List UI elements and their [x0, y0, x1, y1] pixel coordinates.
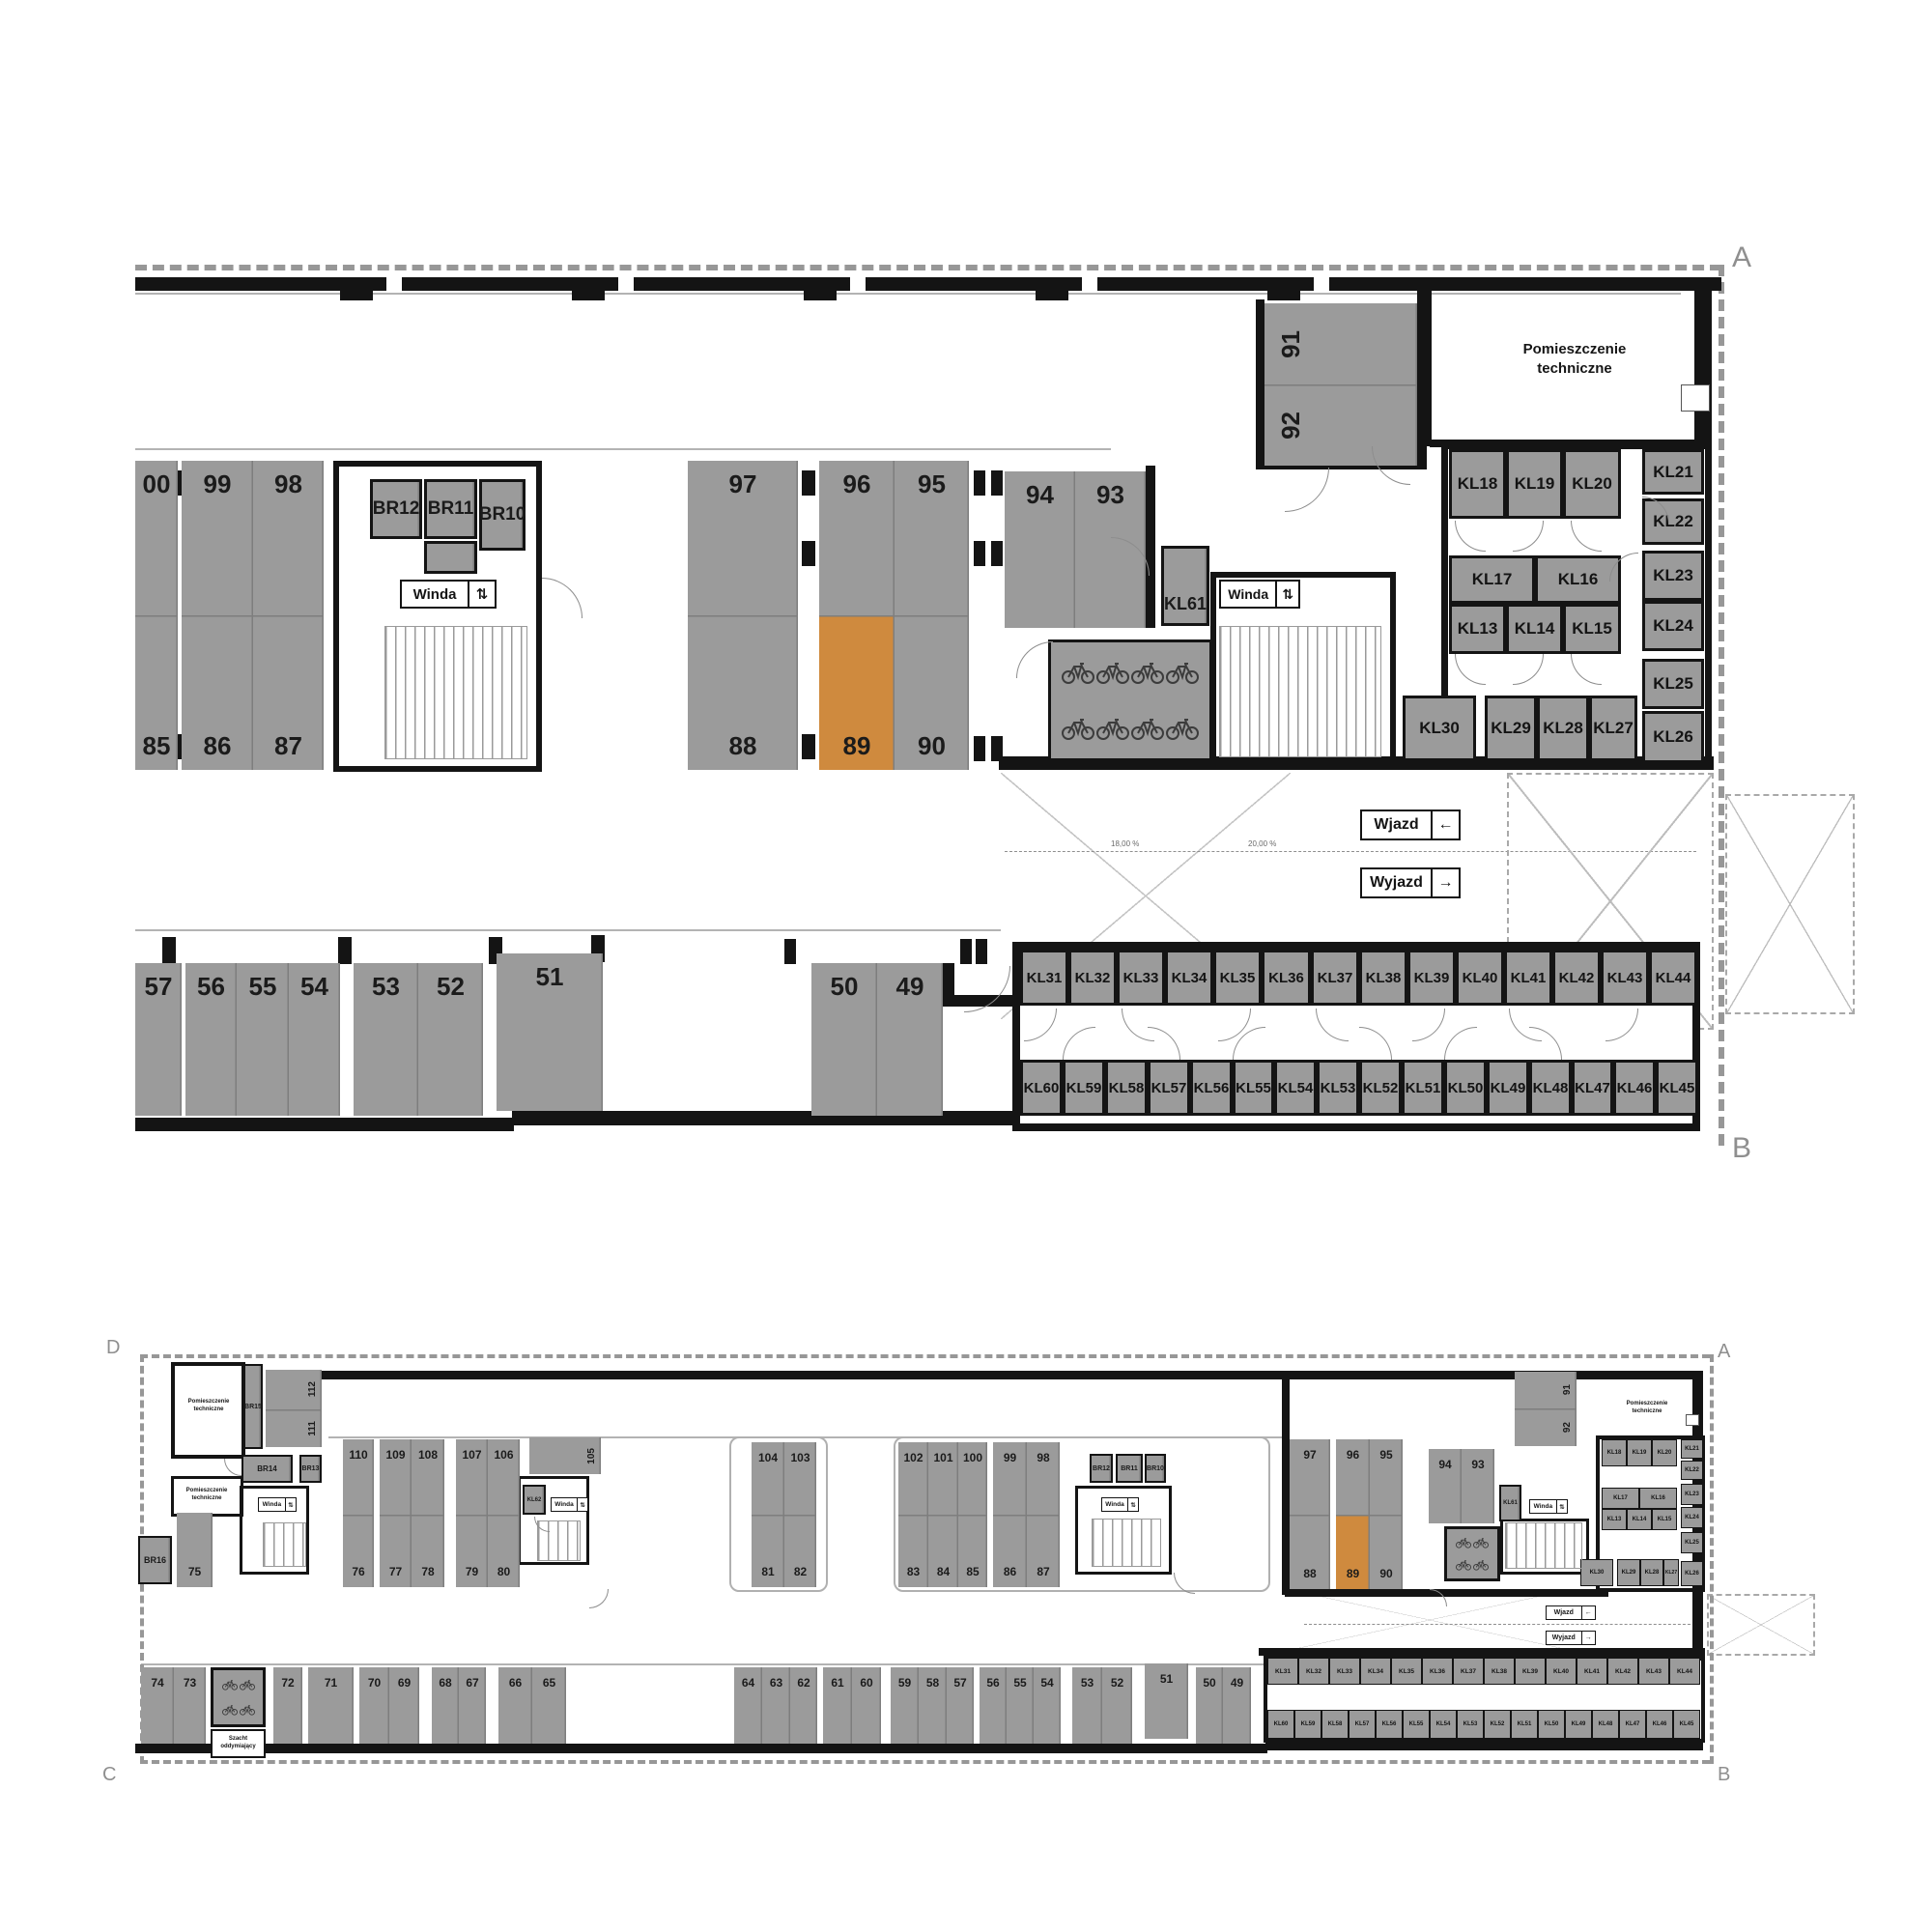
parking-space-75[interactable]: 75	[177, 1513, 213, 1587]
parking-space-90[interactable]: 90	[895, 615, 969, 770]
parking-space-96[interactable]: 96	[1336, 1439, 1370, 1515]
storage-locker-KL52[interactable]: KL52	[1359, 1060, 1402, 1116]
storage-locker-KL27[interactable]: KL27	[1663, 1559, 1679, 1586]
parking-space-64[interactable]: 64	[734, 1667, 762, 1744]
storage-locker-KL14[interactable]: KL14	[1627, 1509, 1652, 1530]
storage-locker-KL26[interactable]: KL26	[1642, 711, 1704, 763]
space-label: 99	[204, 469, 232, 499]
locker-label: KL48	[1599, 1721, 1613, 1727]
parking-space-102[interactable]: 102	[898, 1442, 928, 1515]
storage-locker-KL18[interactable]: KL18	[1602, 1439, 1627, 1466]
storage-locker-KL50[interactable]: KL50	[1538, 1710, 1565, 1739]
storage-room-BR10[interactable]: BR10	[1145, 1454, 1166, 1483]
locker-label: KL42	[1615, 1668, 1631, 1675]
storage-room-BR11[interactable]: BR11	[1116, 1454, 1143, 1483]
storage-locker-KL48[interactable]: KL48	[1592, 1710, 1619, 1739]
locker-label: KL17	[1613, 1495, 1628, 1501]
storage-locker-KL30[interactable]: KL30	[1580, 1559, 1613, 1586]
storage-locker-KL47[interactable]: KL47	[1572, 1060, 1613, 1116]
storage-locker-KL39[interactable]: KL39	[1407, 950, 1456, 1006]
space-label: 89	[1347, 1567, 1359, 1580]
parking-space-61[interactable]: 61	[823, 1667, 852, 1744]
parking-space-78[interactable]: 78	[412, 1515, 444, 1587]
floor-edge-line	[135, 448, 1111, 450]
storage-locker-KL19[interactable]: KL19	[1506, 449, 1563, 519]
storage-locker-KL25[interactable]: KL25	[1642, 659, 1704, 709]
storage-locker-KL34[interactable]: KL34	[1360, 1658, 1391, 1685]
technical-room-label: Pomieszczenietechniczne	[1488, 340, 1662, 378]
storage-locker-KL43[interactable]: KL43	[1601, 950, 1649, 1006]
storage-room-BR13[interactable]: BR13	[299, 1455, 322, 1483]
storage-locker-KL26[interactable]: KL26	[1681, 1561, 1703, 1586]
space-label: 98	[274, 469, 302, 499]
parking-space-69[interactable]: 69	[389, 1667, 419, 1744]
storage-locker-KL13[interactable]: KL13	[1449, 604, 1506, 654]
parking-space-94[interactable]: 94	[1005, 471, 1075, 628]
bike-storage-room[interactable]	[1444, 1526, 1500, 1581]
storage-room-BR11[interactable]: BR11	[424, 479, 477, 539]
parking-space-57[interactable]: 57	[947, 1667, 974, 1744]
locker-label: KL43	[1646, 1668, 1662, 1675]
space-label: 73	[184, 1676, 196, 1690]
locker-label: KL53	[1321, 1080, 1356, 1096]
bike-icon	[1131, 659, 1164, 686]
space-label: 56	[986, 1676, 999, 1690]
storage-locker-KL36[interactable]: KL36	[1262, 950, 1311, 1006]
storage-locker-KL19[interactable]: KL19	[1627, 1439, 1652, 1466]
locker-label: KL23	[1685, 1492, 1699, 1497]
parking-space-54[interactable]: 54	[1034, 1667, 1061, 1744]
parking-space-51[interactable]: 51	[1145, 1663, 1188, 1739]
storage-room-BR16[interactable]: BR16	[138, 1536, 172, 1584]
space-label: 110	[349, 1448, 367, 1462]
storage-locker-KL44[interactable]: KL44	[1649, 950, 1697, 1006]
bike-storage-room[interactable]	[211, 1667, 266, 1727]
storage-locker-KL53[interactable]: KL53	[1457, 1710, 1484, 1739]
parking-space-85[interactable]: 85	[958, 1515, 987, 1587]
storage-locker-KL62[interactable]: KL62	[523, 1485, 546, 1515]
storage-locker-KL37[interactable]: KL37	[1453, 1658, 1484, 1685]
storage-locker-KL22[interactable]: KL22	[1681, 1461, 1703, 1480]
exit-label: Wyjazd	[1362, 869, 1431, 896]
storage-locker-KL35[interactable]: KL35	[1213, 950, 1262, 1006]
parking-space-87[interactable]: 87	[253, 615, 324, 770]
parking-space-87[interactable]: 87	[1027, 1515, 1060, 1587]
parking-space-54[interactable]: 54	[289, 963, 340, 1116]
storage-locker-KL61[interactable]: KL61	[1161, 546, 1209, 626]
locker-label: KL18	[1607, 1450, 1622, 1456]
storage-room-BR12[interactable]: BR12	[370, 479, 422, 539]
storage-locker-KL33[interactable]: KL33	[1329, 1658, 1360, 1685]
parking-space-55[interactable]: 55	[1007, 1667, 1034, 1744]
storage-locker-KL17[interactable]: KL17	[1602, 1488, 1639, 1509]
locker-label: KL24	[1685, 1515, 1699, 1520]
parking-space-84[interactable]: 84	[928, 1515, 958, 1587]
locker-label: KL47	[1575, 1080, 1610, 1096]
storage-locker-KL30[interactable]: KL30	[1403, 696, 1476, 761]
storage-locker-KL45[interactable]: KL45	[1656, 1060, 1698, 1116]
storage-locker-KL43[interactable]: KL43	[1638, 1658, 1669, 1685]
parking-space-55[interactable]: 55	[237, 963, 289, 1116]
parking-space-109[interactable]: 109	[380, 1439, 412, 1515]
storage-locker-KL37[interactable]: KL37	[1311, 950, 1359, 1006]
storage-locker-KL21[interactable]: KL21	[1642, 449, 1704, 495]
locker-label: KL25	[1653, 674, 1693, 694]
storage-locker-KL49[interactable]: KL49	[1487, 1060, 1529, 1116]
parking-space-50[interactable]: 50	[811, 963, 877, 1116]
space-label: 80	[497, 1565, 510, 1578]
parking-space-88[interactable]: 88	[688, 615, 798, 770]
storage-room-BR10[interactable]: BR10	[479, 479, 526, 551]
storage-locker-KL16[interactable]: KL16	[1535, 555, 1621, 604]
space-label: 87	[274, 731, 302, 761]
storage-locker-KL47[interactable]: KL47	[1619, 1710, 1646, 1739]
elevator[interactable]: Winda ⇅	[1101, 1497, 1139, 1512]
storage-locker-KL24[interactable]: KL24	[1681, 1507, 1703, 1528]
space-label: BR14	[257, 1464, 276, 1473]
bike-icon	[222, 1703, 238, 1717]
parking-space-99[interactable]: 99	[182, 461, 253, 615]
storage-locker-KL45[interactable]: KL45	[1673, 1710, 1700, 1739]
space-label: 82	[794, 1565, 807, 1578]
storage-locker-KL54[interactable]: KL54	[1430, 1710, 1457, 1739]
section-letter-b: B	[1718, 1764, 1730, 1786]
parking-space-95[interactable]: 95	[1370, 1439, 1403, 1515]
staircase	[1505, 1522, 1582, 1569]
parking-space-72[interactable]: 72	[273, 1667, 302, 1744]
storage-locker-KL55[interactable]: KL55	[1233, 1060, 1274, 1116]
arrow-left-icon: ←	[1431, 811, 1459, 838]
space-label: 108	[418, 1448, 438, 1462]
parking-space-89[interactable]: 89	[1336, 1515, 1370, 1589]
ramp-slope-label: 20,00 %	[1248, 839, 1276, 848]
space-label: KL61	[1164, 594, 1207, 614]
parking-space-98[interactable]: 98	[253, 461, 324, 615]
storage-locker-KL41[interactable]: KL41	[1504, 950, 1552, 1006]
space-label: 94	[1438, 1458, 1451, 1471]
parking-space-101[interactable]: 101	[928, 1442, 958, 1515]
storage-locker-KL36[interactable]: KL36	[1422, 1658, 1453, 1685]
locker-label: KL14	[1515, 619, 1555, 639]
parking-space-94[interactable]: 94	[1429, 1449, 1462, 1523]
parking-space-86[interactable]: 86	[182, 615, 253, 770]
storage-locker-KL52[interactable]: KL52	[1484, 1710, 1511, 1739]
parking-space-50[interactable]: 50	[1196, 1667, 1223, 1744]
storage-locker-KL42[interactable]: KL42	[1552, 950, 1601, 1006]
storage-locker-KL20[interactable]: KL20	[1652, 1439, 1677, 1466]
locker-label: KL44	[1677, 1668, 1692, 1675]
parking-space-106[interactable]: 106	[488, 1439, 520, 1515]
space-label: 92	[1276, 412, 1306, 440]
parking-space-80[interactable]: 80	[488, 1515, 520, 1587]
parking-space-74[interactable]: 74	[141, 1667, 174, 1744]
parking-space-107[interactable]: 107	[456, 1439, 488, 1515]
parking-space-90[interactable]: 90	[1370, 1515, 1403, 1589]
locker-label: KL41	[1584, 1668, 1600, 1675]
locker-label: KL37	[1318, 970, 1353, 986]
wall	[1430, 440, 1712, 447]
space-label: 90	[1379, 1567, 1392, 1580]
wall	[974, 736, 985, 761]
storage-locker-KL56[interactable]: KL56	[1190, 1060, 1233, 1116]
storage-locker-KL55[interactable]: KL55	[1403, 1710, 1430, 1739]
storage-locker-KL58[interactable]: KL58	[1321, 1710, 1349, 1739]
parking-space-65[interactable]: 65	[532, 1667, 566, 1744]
parking-space-85[interactable]: 85	[135, 615, 178, 770]
storage-locker-KL16[interactable]: KL16	[1639, 1488, 1677, 1509]
storage-locker-KL59[interactable]: KL59	[1063, 1060, 1105, 1116]
parking-space-63[interactable]: 63	[762, 1667, 790, 1744]
parking-space-60[interactable]: 60	[852, 1667, 881, 1744]
locker-label: KL19	[1515, 474, 1555, 494]
space-label: 93	[1096, 480, 1124, 510]
parking-space-56[interactable]: 56	[185, 963, 237, 1116]
space-label: 51	[536, 962, 564, 992]
space-label: 89	[843, 731, 871, 761]
parking-space-59[interactable]: 59	[891, 1667, 919, 1744]
locker-label: KL47	[1626, 1721, 1640, 1727]
parking-space-00[interactable]: 00	[135, 461, 178, 615]
storage-locker-KL29[interactable]: KL29	[1485, 696, 1537, 761]
locker-label: KL20	[1658, 1450, 1672, 1456]
elevator-left[interactable]: Winda ⇅	[400, 580, 497, 609]
storage-locker-KL61[interactable]: KL61	[1499, 1485, 1521, 1521]
storage-locker-KL46[interactable]: KL46	[1613, 1060, 1656, 1116]
locker-label: KL51	[1518, 1721, 1532, 1727]
parking-space-88[interactable]: 88	[1290, 1515, 1330, 1589]
parking-space-51[interactable]: 51	[497, 953, 603, 1111]
space-label: 50	[831, 972, 859, 1002]
space-label: 78	[421, 1565, 434, 1578]
staircase	[263, 1522, 306, 1567]
wall	[338, 937, 352, 964]
storage-room-BR14[interactable]: BR14	[241, 1455, 293, 1483]
parking-space-103[interactable]: 103	[784, 1442, 816, 1515]
storage-locker-KL35[interactable]: KL35	[1391, 1658, 1422, 1685]
storage-room-BR12[interactable]: BR12	[1090, 1454, 1113, 1483]
wall	[784, 939, 796, 964]
storage-locker-KL53[interactable]: KL53	[1317, 1060, 1359, 1116]
storage-locker-KL54[interactable]: KL54	[1274, 1060, 1317, 1116]
parking-space-56[interactable]: 56	[980, 1667, 1007, 1744]
parking-space-57[interactable]: 57	[135, 963, 182, 1116]
wall	[1417, 290, 1427, 469]
parking-space-62[interactable]: 62	[790, 1667, 817, 1744]
storage-locker-KL23[interactable]: KL23	[1642, 551, 1704, 601]
storage-locker-KL51[interactable]: KL51	[1402, 1060, 1444, 1116]
storage-locker-KL42[interactable]: KL42	[1607, 1658, 1638, 1685]
parking-space-49[interactable]: 49	[877, 963, 943, 1116]
parking-space-104[interactable]: 104	[752, 1442, 784, 1515]
plan-boundary	[135, 265, 1721, 270]
locker-label: KL20	[1572, 474, 1612, 494]
parking-space-92[interactable]: 92	[1515, 1408, 1577, 1446]
elevator[interactable]: Winda ⇅	[551, 1497, 588, 1512]
parking-space-97[interactable]: 97	[1290, 1439, 1330, 1515]
bike-icon	[1096, 659, 1129, 686]
parking-space-100[interactable]: 100	[958, 1442, 987, 1515]
floor-plan-canvas: 00859998868797889695899094939192BR12BR11…	[0, 0, 1932, 1932]
space-label: BR12	[1093, 1465, 1110, 1472]
space-label: 90	[918, 731, 946, 761]
locker-label: KL49	[1572, 1721, 1586, 1727]
storage-locker-KL49[interactable]: KL49	[1565, 1710, 1592, 1739]
storage-locker-KL34[interactable]: KL34	[1165, 950, 1213, 1006]
space-label: 101	[933, 1451, 952, 1464]
storage-locker-KL17[interactable]: KL17	[1449, 555, 1535, 604]
wall	[1146, 466, 1155, 628]
space-label: 96	[843, 469, 871, 499]
storage-locker-KL15[interactable]: KL15	[1652, 1509, 1677, 1530]
storage-locker-KL28[interactable]: KL28	[1537, 696, 1589, 761]
locker-label: KL46	[1617, 1080, 1653, 1096]
storage-locker-KL60[interactable]: KL60	[1267, 1710, 1294, 1739]
parking-space-95[interactable]: 95	[895, 461, 969, 615]
parking-space-97[interactable]: 97	[688, 461, 798, 615]
parking-space-82[interactable]: 82	[784, 1515, 816, 1587]
parking-space-53[interactable]: 53	[1072, 1667, 1102, 1744]
storage-locker-KL38[interactable]: KL38	[1359, 950, 1407, 1006]
storage-locker-KL57[interactable]: KL57	[1349, 1710, 1376, 1739]
storage-locker-KL40[interactable]: KL40	[1546, 1658, 1577, 1685]
space-label: BR13	[302, 1465, 320, 1472]
space-label: KL61	[1503, 1500, 1518, 1506]
storage-locker-KL13[interactable]: KL13	[1602, 1509, 1627, 1530]
parking-space-93[interactable]: 93	[1462, 1449, 1494, 1523]
storage-locker-KL59[interactable]: KL59	[1294, 1710, 1321, 1739]
storage-locker-KL39[interactable]: KL39	[1515, 1658, 1546, 1685]
section-letter-a: A	[1718, 1341, 1730, 1363]
storage-locker-KL60[interactable]: KL60	[1020, 1060, 1063, 1116]
locker-label: KL57	[1355, 1721, 1370, 1727]
space-label: 59	[898, 1676, 911, 1690]
storage-locker-KL28[interactable]: KL28	[1640, 1559, 1663, 1586]
parking-space-67[interactable]: 67	[459, 1667, 486, 1744]
space-label: 94	[1026, 480, 1054, 510]
parking-space-73[interactable]: 73	[174, 1667, 206, 1744]
parking-space-96[interactable]: 96	[819, 461, 895, 615]
parking-space-86[interactable]: 86	[993, 1515, 1027, 1587]
storage-locker-KL50[interactable]: KL50	[1444, 1060, 1487, 1116]
storage-locker-KL32[interactable]: KL32	[1298, 1658, 1329, 1685]
parking-space-66[interactable]: 66	[498, 1667, 532, 1744]
storage-locker-KL31[interactable]: KL31	[1020, 950, 1068, 1006]
parking-space-111[interactable]: 111	[266, 1409, 322, 1447]
storage-locker-KL15[interactable]: KL15	[1563, 604, 1621, 654]
parking-space-98[interactable]: 98	[1027, 1442, 1060, 1515]
storage-room-BR15[interactable]: BR15	[243, 1364, 263, 1449]
storage-locker-KL32[interactable]: KL32	[1068, 950, 1117, 1006]
parking-space-112[interactable]: 112	[266, 1370, 322, 1409]
storage-locker-KL41[interactable]: KL41	[1577, 1658, 1607, 1685]
storage-locker-KL38[interactable]: KL38	[1484, 1658, 1515, 1685]
parking-space-76[interactable]: 76	[343, 1515, 374, 1587]
space-label: 85	[143, 731, 171, 761]
storage-locker-KL46[interactable]: KL46	[1646, 1710, 1673, 1739]
parking-space-89[interactable]: 89	[819, 615, 895, 770]
plan-boundary	[140, 1760, 1710, 1764]
locker-label: KL36	[1268, 970, 1304, 986]
locker-label: KL54	[1436, 1721, 1451, 1727]
parking-space-81[interactable]: 81	[752, 1515, 784, 1587]
wall	[974, 470, 985, 496]
storage-locker-KL29[interactable]: KL29	[1617, 1559, 1640, 1586]
parking-space-70[interactable]: 70	[359, 1667, 389, 1744]
parking-space-58[interactable]: 58	[919, 1667, 947, 1744]
parking-space-79[interactable]: 79	[456, 1515, 488, 1587]
storage-locker-KL18[interactable]: KL18	[1449, 449, 1506, 519]
wall-joint-gap	[850, 277, 866, 291]
parking-space-49[interactable]: 49	[1223, 1667, 1251, 1744]
storage-locker-KL56[interactable]: KL56	[1376, 1710, 1403, 1739]
elevator[interactable]: Winda ⇅	[1529, 1499, 1568, 1514]
locker-label: KL13	[1458, 619, 1498, 639]
storage-locker-KL24[interactable]: KL24	[1642, 601, 1704, 651]
elevator-label: Winda	[259, 1498, 285, 1511]
bike-icon	[240, 1703, 255, 1717]
locker-label: KL35	[1399, 1668, 1414, 1675]
space-label: BR12	[373, 498, 420, 520]
parking-space-105[interactable]: 105	[529, 1437, 601, 1474]
storage-locker-KL48[interactable]: KL48	[1529, 1060, 1572, 1116]
parking-space-52[interactable]: 52	[418, 963, 483, 1116]
storage-locker-KL58[interactable]: KL58	[1105, 1060, 1148, 1116]
locker-label: KL30	[1419, 719, 1460, 738]
storage-locker-KL14[interactable]: KL14	[1506, 604, 1563, 654]
parking-space-71[interactable]: 71	[308, 1667, 354, 1744]
arrow-left-icon: ←	[1581, 1606, 1596, 1619]
locker-label: KL52	[1491, 1721, 1505, 1727]
space-label: BR11	[428, 498, 474, 520]
parking-space-108[interactable]: 108	[412, 1439, 444, 1515]
locker-label: KL35	[1220, 970, 1256, 986]
parking-space-52[interactable]: 52	[1102, 1667, 1132, 1744]
storage-locker-KL51[interactable]: KL51	[1511, 1710, 1538, 1739]
elevator-right[interactable]: Winda ⇅	[1219, 580, 1300, 609]
space-label: 52	[437, 972, 465, 1002]
storage-locker-KL44[interactable]: KL44	[1669, 1658, 1700, 1685]
storage-locker-KL20[interactable]: KL20	[1563, 449, 1621, 519]
storage-locker-KL33[interactable]: KL33	[1117, 950, 1165, 1006]
locker-label: KL26	[1685, 1571, 1699, 1577]
bike-storage-room[interactable]	[1048, 639, 1212, 761]
storage-locker-KL21[interactable]: KL21	[1681, 1439, 1703, 1459]
elevator-arrows-icon: ⇅	[285, 1498, 296, 1511]
parking-space-68[interactable]: 68	[432, 1667, 459, 1744]
storage-locker-KL25[interactable]: KL25	[1681, 1532, 1703, 1553]
storage-locker-KL57[interactable]: KL57	[1148, 1060, 1190, 1116]
parking-space-83[interactable]: 83	[898, 1515, 928, 1587]
locker-label: KL15	[1572, 619, 1612, 639]
locker-label: KL60	[1024, 1080, 1060, 1096]
storage-locker-KL40[interactable]: KL40	[1456, 950, 1504, 1006]
parking-space-91[interactable]: 91	[1264, 303, 1417, 384]
parking-space-77[interactable]: 77	[380, 1515, 412, 1587]
parking-space-91[interactable]: 91	[1515, 1372, 1577, 1408]
elevator[interactable]: Winda ⇅	[258, 1497, 297, 1512]
locker-label: KL30	[1590, 1570, 1605, 1576]
parking-space-99[interactable]: 99	[993, 1442, 1027, 1515]
parking-space-110[interactable]: 110	[343, 1439, 374, 1515]
bike-icon	[1456, 1536, 1471, 1549]
storage-locker-KL27[interactable]: KL27	[1589, 696, 1637, 761]
wall	[1285, 1589, 1608, 1597]
storage-locker-KL31[interactable]: KL31	[1267, 1658, 1298, 1685]
locker-label: KL45	[1680, 1721, 1694, 1727]
storage-locker-KL23[interactable]: KL23	[1681, 1484, 1703, 1505]
parking-space-53[interactable]: 53	[354, 963, 418, 1116]
wall	[340, 291, 373, 300]
